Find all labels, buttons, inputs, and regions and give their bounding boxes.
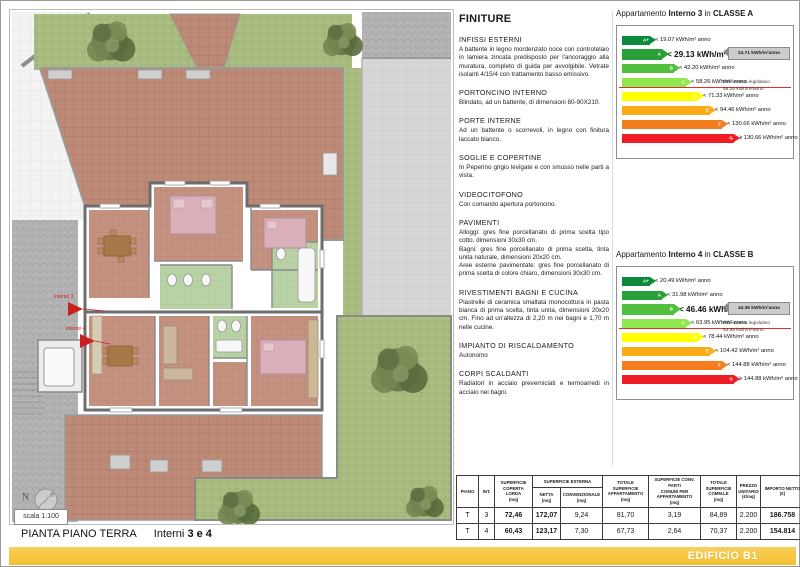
energy-chart-title: Appartamento Interno 3 in CLASSE A xyxy=(616,9,798,18)
finiture-section-heading: RIVESTIMENTI BAGNI E CUCINA xyxy=(459,288,609,297)
energy-bar-label: < 104.42 kWh/m² anno xyxy=(715,348,774,354)
energy-bar-A+: A+< 19.07 kWh/m² anno xyxy=(617,33,793,47)
energy-bar-label: < 19.07 kWh/m² anno xyxy=(655,37,711,43)
table-cell: 2,64 xyxy=(649,523,701,539)
title-apartment: Interno 4 xyxy=(669,250,703,259)
table-cell: 2.200 xyxy=(737,523,761,539)
building-banner-label: EDIFICIO B1 xyxy=(688,550,758,562)
energy-class-letter: F xyxy=(718,363,721,368)
energy-class-letter: E xyxy=(706,349,709,354)
finiture-section-body: Radiatori in acciaio preverniciati e ter… xyxy=(459,380,609,397)
table-cell: 70,37 xyxy=(701,523,737,539)
sheet-title-main: PIANTA PIANO TERRA xyxy=(21,528,137,540)
sheet-title-sub: Interni xyxy=(154,528,185,540)
table-cell: 2.200 xyxy=(737,507,761,523)
energy-bar-G: G≥ 144.88 kWh/m² anno xyxy=(617,372,793,386)
finiture-section-heading: PORTE INTERNE xyxy=(459,116,609,125)
table-cell: 3,19 xyxy=(649,507,701,523)
apartment-3-plan-label: interno 3 xyxy=(54,294,73,300)
surfaces-price-table: PIANO INT. SUPERFICIE COPERTA LORDA (mq)… xyxy=(456,475,800,540)
current-value-callout: 44.36 kWh/m²anno xyxy=(728,302,790,315)
finiture-section: RIVESTIMENTI BAGNI E CUCINA Piastrelle d… xyxy=(459,288,609,332)
finiture-section: IMPIANTO DI RISCALDAMENTO Autonomo xyxy=(459,341,609,360)
finiture-column: FINITURE INFISSI ESTERNI A battente in l… xyxy=(459,13,609,406)
title-connector: in xyxy=(705,250,711,259)
energy-class-letter: G xyxy=(729,377,733,382)
finiture-section-body: In Peperino grigio levigate e con smusso… xyxy=(459,164,609,181)
energy-bar-A+: A+< 20.49 kWh/m² anno xyxy=(617,274,793,288)
finiture-section: INFISSI ESTERNI A battente in legno mord… xyxy=(459,35,609,79)
title-class: CLASSE A xyxy=(713,9,753,18)
floor-plan: interno 3 interno 4 N scala 1:100 xyxy=(9,9,454,525)
title-apartment: Interno 3 xyxy=(669,9,703,18)
table-cell: 186.758 xyxy=(761,507,800,523)
finiture-section: PORTONCINO INTERNO Blindato, ad un batte… xyxy=(459,88,609,107)
table-cell: T xyxy=(457,507,479,523)
energy-bar-F: F< 144.88 kWh/m² anno xyxy=(617,358,793,372)
energy-class-letter: A xyxy=(658,52,661,57)
energy-class-letter: C xyxy=(682,80,685,85)
energy-bar-A: A< 31.98 kWh/m² anno xyxy=(617,288,793,302)
table-cell: 123,17 xyxy=(533,523,561,539)
energy-chart-apartment-4: Appartamento Interno 4 in CLASSE B A+< 2… xyxy=(616,250,798,400)
apartment-4-plan-label: interno 4 xyxy=(66,326,85,332)
energy-class-letter: B xyxy=(670,66,673,71)
finiture-section-body: Alloggi: gres fine porcellanato di prima… xyxy=(459,229,609,279)
finiture-section-heading: PORTONCINO INTERNO xyxy=(459,88,609,97)
col-convenzionale: CONVENZIONALE (mq) xyxy=(561,488,603,508)
finiture-section-heading: VIDEOCITOFONO xyxy=(459,190,609,199)
col-totale-app: TOTALE SUPERFICIE APPARTAMENTO (mq) xyxy=(603,476,649,508)
table-cell: 67,73 xyxy=(603,523,649,539)
finiture-section-heading: CORPI SCALDANTI xyxy=(459,369,609,378)
sheet-title: PIANTA PIANO TERRA Interni 3 e 4 xyxy=(21,528,212,540)
col-piano: PIANO xyxy=(457,476,479,508)
energy-class-letter: D xyxy=(694,94,697,99)
title-connector: in xyxy=(705,9,711,18)
col-totale-comm: TOTALE SUPERFICIE COMM.LE (mq) xyxy=(701,476,737,508)
compass-north-label: N xyxy=(22,492,29,503)
floor-plan-drawing xyxy=(10,10,453,524)
finiture-section: CORPI SCALDANTI Radiatori in acciaio pre… xyxy=(459,369,609,397)
table-cell: 9,24 xyxy=(561,507,603,523)
col-netta: NETTA (mq) xyxy=(533,488,561,508)
energy-class-letter: A+ xyxy=(643,279,649,284)
table-cell: 154.814 xyxy=(761,523,800,539)
table-cell: 60,43 xyxy=(495,523,533,539)
energy-class-letter: G xyxy=(729,136,733,141)
title-prefix: Appartamento xyxy=(616,250,666,259)
scale-label: scala 1:100 xyxy=(14,509,68,525)
energy-bar-E: E< 94.46 kWh/m² anno xyxy=(617,103,793,117)
finiture-section-heading: INFISSI ESTERNI xyxy=(459,35,609,44)
legal-reference-text: Riferimento legislativo58.26 kWh/m²anno xyxy=(723,79,789,94)
table-cell: T xyxy=(457,523,479,539)
energy-class-letter: C xyxy=(682,321,685,326)
table-row: T460,43123,177,3067,732,6470,372.200154.… xyxy=(457,523,800,539)
col-prezzo: PREZZO UNITARIO (€/mq) xyxy=(737,476,761,508)
energy-class-letter: B xyxy=(670,307,673,312)
energy-scale: A+< 19.07 kWh/m² annoA< 29.13 kWh/m² ann… xyxy=(616,25,794,159)
energy-bar-E: E< 104.42 kWh/m² anno xyxy=(617,344,793,358)
finiture-section-body: Piastrelle di ceramica smaltata monocott… xyxy=(459,299,609,332)
finiture-section-body: Ad un battente o scorrevoli, in legno co… xyxy=(459,127,609,144)
energy-class-letter: A xyxy=(658,293,661,298)
energy-bar-G: G≥ 130.66 kWh/m² anno xyxy=(617,131,793,145)
energy-class-letter: A+ xyxy=(643,38,649,43)
finiture-section: PORTE INTERNE Ad un battente o scorrevol… xyxy=(459,116,609,144)
col-esterna: SUPERFICIE ESTERNA xyxy=(533,476,603,488)
finiture-section-body: A battente in legno mordenzato noce con … xyxy=(459,46,609,79)
finiture-section-heading: PAVIMENTI xyxy=(459,218,609,227)
page: interno 3 interno 4 N scala 1:100 FINITU… xyxy=(0,0,800,567)
finiture-section: SOGLIE E COPERTINE In Peperino grigio le… xyxy=(459,153,609,181)
finiture-sections: INFISSI ESTERNI A battente in legno mord… xyxy=(459,35,609,397)
col-coperta: SUPERFICIE COPERTA LORDA (mq) xyxy=(495,476,533,508)
energy-bar-B: B< 42.20 kWh/m² anno xyxy=(617,61,793,75)
energy-bar-label: ≥ 130.66 kWh/m² anno xyxy=(739,135,798,141)
finiture-section-heading: SOGLIE E COPERTINE xyxy=(459,153,609,162)
table-cell: 84,89 xyxy=(701,507,737,523)
finiture-section: VIDEOCITOFONO Con comando apertura porto… xyxy=(459,190,609,209)
energy-bar-label: < 78.44 kWh/m² anno xyxy=(703,334,759,340)
table-cell: 81,70 xyxy=(603,507,649,523)
energy-class-letter: F xyxy=(718,122,721,127)
finiture-section: PAVIMENTI Alloggi: gres fine porcellanat… xyxy=(459,218,609,279)
energy-chart-title: Appartamento Interno 4 in CLASSE B xyxy=(616,250,798,259)
finiture-title: FINITURE xyxy=(459,13,609,25)
column-divider xyxy=(612,11,613,466)
energy-bar-label: ≥ 144.88 kWh/m² anno xyxy=(739,376,798,382)
energy-bar-F: F< 130.66 kWh/m² anno xyxy=(617,117,793,131)
legal-reference-text: Riferimento legislativo63.95 kWh/m²anno xyxy=(723,320,789,335)
finiture-section-body: Autonomo xyxy=(459,352,609,360)
title-prefix: Appartamento xyxy=(616,9,666,18)
col-importo: IMPORTO NETTO (€) xyxy=(761,476,800,508)
finiture-section-body: Con comando apertura portoncino. xyxy=(459,201,609,209)
energy-bar-label: < 42.20 kWh/m² anno xyxy=(679,65,735,71)
energy-scale: A+< 20.49 kWh/m² annoA< 31.98 kWh/m² ann… xyxy=(616,266,794,400)
energy-bar-label: < 130.66 kWh/m² anno xyxy=(727,121,786,127)
table-cell: 172,07 xyxy=(533,507,561,523)
table-cell: 72,46 xyxy=(495,507,533,523)
col-conv-comuni: SUPERFICIE CONV. PARTI COMUNI PER APPART… xyxy=(649,476,701,508)
table-cell: 7,30 xyxy=(561,523,603,539)
current-value-callout: 24.71 kWh/m²anno xyxy=(728,47,790,60)
energy-chart-apartment-3: Appartamento Interno 3 in CLASSE A A+< 1… xyxy=(616,9,798,159)
table-cell: 3 xyxy=(479,507,495,523)
building-banner: EDIFICIO B1 xyxy=(9,547,796,565)
energy-bar-label: < 20.49 kWh/m² anno xyxy=(655,278,711,284)
table-cell: 4 xyxy=(479,523,495,539)
energy-bar-label: < 31.98 kWh/m² anno xyxy=(667,292,723,298)
title-class: CLASSE B xyxy=(713,250,753,259)
energy-bar-label: < 94.46 kWh/m² anno xyxy=(715,107,771,113)
finiture-section-heading: IMPIANTO DI RISCALDAMENTO xyxy=(459,341,609,350)
energy-bar-label: < 144.88 kWh/m² anno xyxy=(727,362,786,368)
energy-class-letter: E xyxy=(706,108,709,113)
energy-class-letter: D xyxy=(694,335,697,340)
energy-bar-label: < 71.33 kWh/m² anno xyxy=(703,93,759,99)
table-row: T372,46172,079,2481,703,1984,892.200186.… xyxy=(457,507,800,523)
col-int: INT. xyxy=(479,476,495,508)
finiture-section-body: Blindato, ad un battente, di dimensioni … xyxy=(459,99,609,107)
sheet-title-sub-bold: 3 e 4 xyxy=(187,528,211,540)
